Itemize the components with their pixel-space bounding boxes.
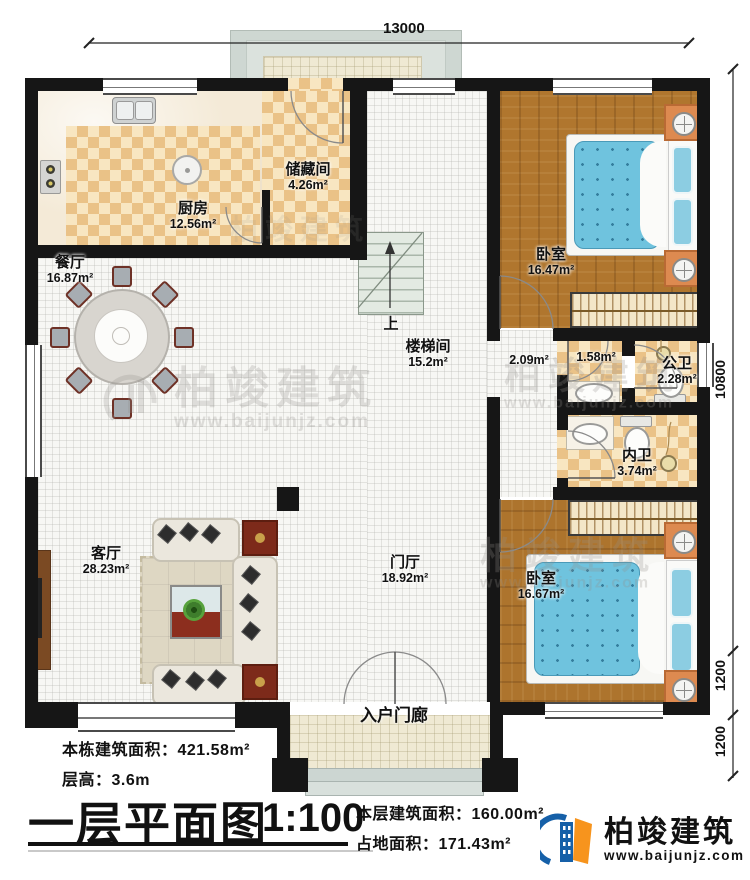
shower-icon: [660, 455, 677, 472]
wall: [622, 341, 635, 356]
wall: [487, 487, 500, 500]
window: [103, 78, 197, 95]
room-label-dining: 餐厅16.87m²: [47, 254, 94, 286]
wall: [652, 78, 710, 91]
pillow: [670, 622, 693, 672]
dimension-right-seg2: 1200: [712, 726, 728, 757]
dining-table-center: [112, 327, 130, 345]
drain-icon: [185, 168, 190, 173]
stairs-up-label: 上: [383, 315, 398, 332]
round-sink-icon: [172, 155, 202, 185]
wall: [697, 91, 710, 343]
sink-icon: [575, 383, 613, 404]
room-label-bedroom-top: 卧室16.47m²: [528, 246, 575, 278]
footprint-area: 占地面积：171.43m²: [356, 830, 511, 854]
brand-logo: 柏竣建筑 www.baijunjz.com: [540, 808, 745, 872]
lamp-icon: [672, 678, 696, 702]
wall: [25, 91, 38, 345]
plant-icon: [183, 599, 205, 621]
bed-sheet-fold: [638, 562, 664, 674]
room-label-private-bath: 内卫3.74m²: [617, 447, 657, 479]
nightstand: [664, 522, 701, 559]
dimension-right-seg1: 1200: [712, 660, 728, 691]
window: [393, 78, 455, 95]
dining-chair: [174, 327, 194, 348]
room-label-kitchen: 厨房12.56m²: [170, 200, 217, 232]
pillow: [672, 198, 693, 246]
wall: [553, 328, 700, 341]
storage-door-threshold: [288, 78, 343, 91]
pillow: [670, 568, 693, 618]
wall: [622, 388, 635, 402]
room-label-corridor: 2.09m²: [509, 353, 549, 367]
wall: [350, 78, 367, 260]
lamp-icon: [672, 258, 696, 282]
room-label-living: 客厅28.23m²: [83, 545, 130, 577]
bed-sheet-fold: [640, 141, 666, 247]
wall: [553, 487, 697, 500]
porch-column: [482, 758, 518, 792]
wall: [557, 478, 568, 487]
lamp-icon: [672, 112, 696, 136]
stair-hall-floor: [367, 91, 487, 702]
room-label-stairwell: 楼梯间15.2m²: [405, 338, 450, 370]
room-label-entry-porch: 入户门廊: [360, 706, 428, 726]
wall: [487, 328, 500, 341]
kitchen-tile: [66, 126, 260, 245]
burner-icon: [46, 179, 55, 188]
title-underline-light: [28, 850, 373, 852]
porch-step-2: [305, 781, 484, 796]
wall: [487, 397, 500, 702]
wall: [557, 415, 568, 430]
wardrobe: [570, 292, 701, 328]
wall: [25, 78, 103, 91]
room-label-public-bath: 公卫2.28m²: [657, 355, 697, 387]
wall: [557, 402, 697, 415]
brand-website: www.baijunjz.com: [604, 848, 745, 863]
staircase: [358, 232, 424, 315]
wall: [557, 375, 568, 402]
window: [25, 345, 42, 477]
building-total-area: 本栋建筑面积：421.58m²: [62, 736, 250, 760]
window: [78, 702, 235, 732]
basin-icon: [116, 101, 134, 120]
dimension-top: 13000: [383, 20, 425, 37]
plan-scale: 1:100: [262, 796, 364, 841]
room-label-storage: 储藏间4.26m²: [285, 161, 330, 193]
wall: [663, 702, 710, 715]
sink-icon: [572, 423, 608, 445]
room-label-vestibule: 1.58m²: [576, 350, 616, 364]
wall: [25, 702, 78, 728]
room-label-bedroom-bottom: 卧室16.67m²: [518, 570, 565, 602]
dimension-right-total: 10800: [712, 360, 728, 399]
wall: [697, 387, 710, 715]
bed-headboard: [666, 560, 698, 678]
dining-chair: [50, 327, 70, 348]
porch-column: [272, 758, 308, 792]
dining-chair: [112, 398, 132, 419]
bed-headboard: [668, 139, 698, 251]
side-table: [242, 520, 278, 556]
wall: [197, 78, 288, 91]
nightstand: [664, 104, 701, 141]
basin-icon: [135, 101, 153, 120]
burner-icon: [46, 165, 55, 174]
pillow: [672, 146, 693, 194]
floor-plan: 13000 10800 1200 1200 厨房12.56m² 储藏间4.26m…: [0, 0, 750, 880]
floor-height: 层高：3.6m: [62, 766, 150, 790]
window: [553, 78, 652, 95]
dining-chair: [112, 266, 132, 287]
wall: [490, 702, 545, 715]
nightstand: [664, 250, 701, 287]
room-label-foyer: 门厅18.92m²: [382, 554, 429, 586]
brand-logo-icon: [540, 808, 596, 872]
wall: [455, 78, 553, 91]
window: [545, 702, 663, 719]
lamp-icon: [672, 530, 696, 554]
wall: [487, 91, 500, 330]
brand-name: 柏竣建筑: [604, 818, 745, 848]
wall: [277, 702, 290, 762]
floor-area: 本层建筑面积：160.00m²: [356, 800, 544, 824]
wall: [25, 477, 38, 728]
toilet-tank: [620, 416, 652, 427]
title-underline: [28, 842, 348, 846]
side-table: [242, 664, 278, 700]
stove-icon: [40, 160, 61, 194]
double-sink-icon: [112, 97, 156, 124]
structural-column: [277, 487, 299, 511]
wall: [262, 190, 270, 245]
